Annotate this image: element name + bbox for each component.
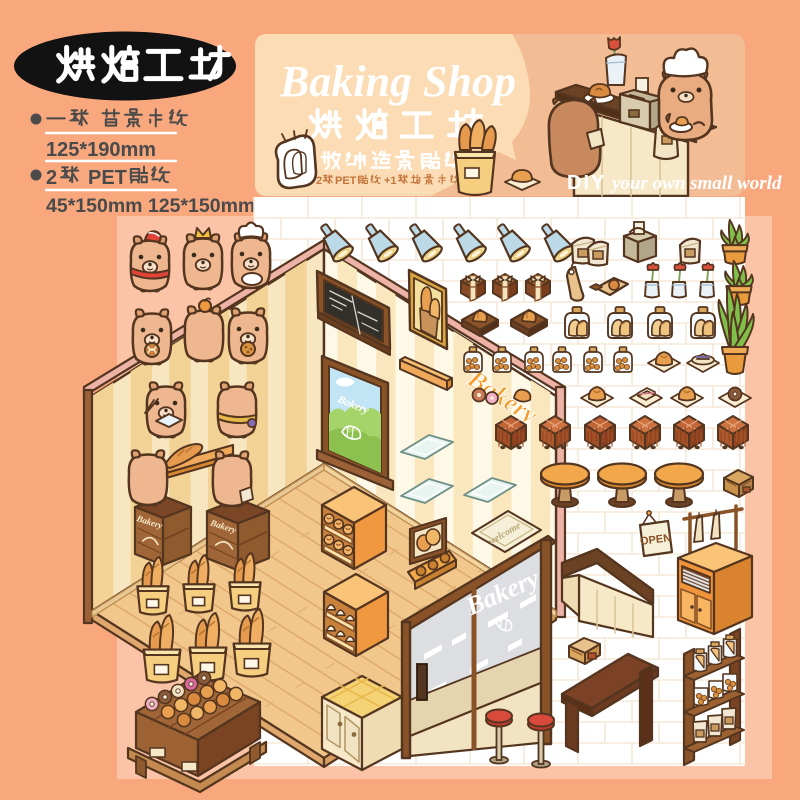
svg-text:125*190mm: 125*190mm [46,139,156,161]
svg-text:Baking Shop: Baking Shop [279,57,516,106]
svg-text:45*150mm 125*150mm: 45*150mm 125*150mm [46,195,255,217]
svg-text:PET: PET [335,175,357,187]
svg-text:PET: PET [88,167,127,189]
svg-text:your own small world: your own small world [610,173,782,194]
svg-text:2: 2 [46,167,57,189]
svg-text:DIY: DIY [567,172,606,194]
svg-text:+1: +1 [384,175,397,187]
svg-text:2: 2 [316,175,322,187]
